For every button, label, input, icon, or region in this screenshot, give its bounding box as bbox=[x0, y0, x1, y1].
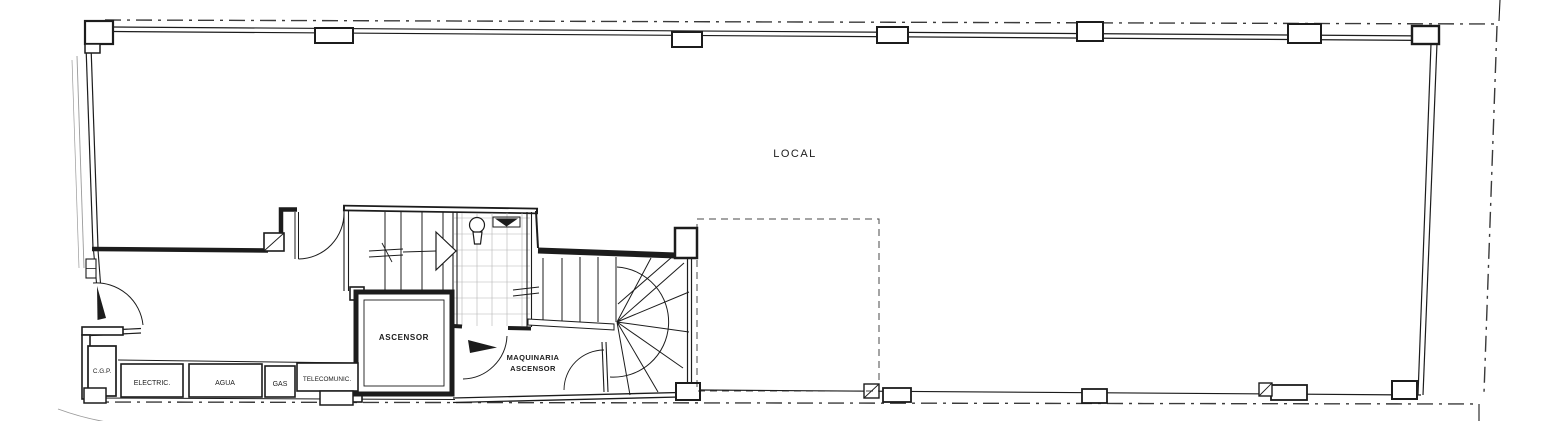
understair-door-arc bbox=[564, 350, 604, 390]
exterior-walls bbox=[72, 27, 1437, 403]
hatched-column bbox=[1259, 383, 1272, 396]
sink-icon bbox=[493, 217, 520, 227]
stair-direction-arrow bbox=[403, 232, 456, 270]
room-label-ascensor: ASCENSOR bbox=[379, 333, 429, 342]
break-line-symbol bbox=[369, 243, 403, 262]
hall-door-arc bbox=[295, 212, 344, 259]
utility-label-agua: AGUA bbox=[215, 380, 235, 387]
tile-grid bbox=[454, 213, 530, 326]
room-label-maquinaria-1: MAQUINARIA bbox=[507, 353, 560, 362]
site-boundary-lines bbox=[58, 0, 1500, 421]
utility-label-gas: GAS bbox=[273, 381, 288, 388]
hall-walls bbox=[86, 210, 297, 279]
stair-straight-flight-left bbox=[369, 212, 456, 290]
break-line-symbol bbox=[513, 287, 539, 296]
machinery-door-arc bbox=[463, 336, 507, 379]
door-leaf-icon bbox=[468, 340, 497, 353]
room-label-maquinaria-2: ASCENSOR bbox=[510, 364, 556, 373]
hatched-column bbox=[264, 233, 284, 251]
stair-winder bbox=[513, 257, 689, 395]
cgp-enclosure: C.G.P. bbox=[82, 327, 123, 403]
handrail bbox=[528, 319, 614, 330]
corner-column-top-left bbox=[85, 21, 113, 53]
elevator-shaft: ASCENSOR bbox=[350, 287, 452, 402]
room-label-local: LOCAL bbox=[773, 148, 817, 160]
toilet-icon bbox=[470, 218, 485, 245]
floor-plan-svg: ASCENSOR MAQUINARIA ASCENSOR bbox=[0, 0, 1550, 421]
door-leaf-icon bbox=[97, 286, 106, 320]
window-symbol bbox=[86, 259, 96, 278]
machinery-room: MAQUINARIA ASCENSOR bbox=[463, 336, 608, 392]
patio-dashed-outline bbox=[697, 219, 879, 391]
utility-label-telecomunic: TELECOMUNIC. bbox=[303, 376, 352, 383]
bathroom bbox=[453, 212, 532, 329]
utility-label-cgp: C.G.P. bbox=[93, 368, 112, 375]
utility-label-electric: ELECTRIC. bbox=[134, 380, 171, 387]
floor-plan-sheet: ASCENSOR MAQUINARIA ASCENSOR bbox=[0, 0, 1550, 421]
